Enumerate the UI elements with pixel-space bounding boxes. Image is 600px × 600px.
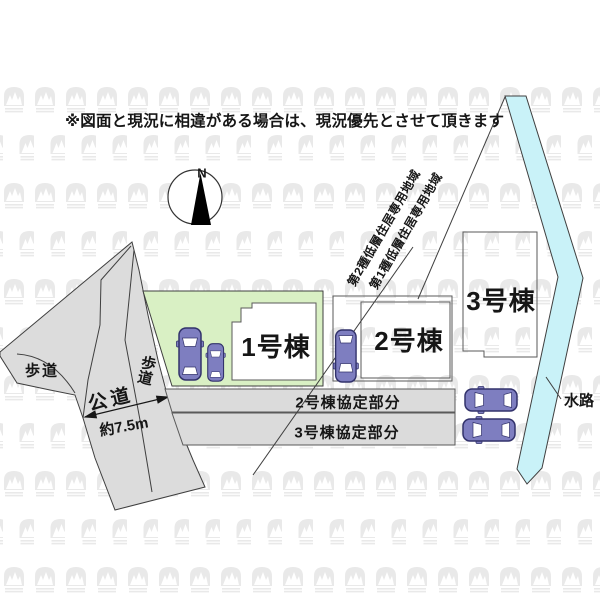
car-icon [465, 387, 517, 414]
compass-north-label: N [197, 167, 206, 180]
building-2-label: 2号棟 [374, 328, 443, 354]
agreement-band-2-label: 3号棟協定部分 [294, 426, 399, 441]
site-plan: ※図面と現況に相違がある場合は、現況優先とさせて頂きます N 第2種低層住居専用… [0, 0, 600, 600]
building-1-label: 1号棟 [241, 334, 310, 360]
car-icon [206, 344, 225, 381]
disclaimer-text: ※図面と現況に相違がある場合は、現況優先とさせて頂きます [65, 114, 504, 130]
sidewalk-left-label: 歩道 [25, 364, 59, 379]
agreement-band-1-label: 2号棟協定部分 [295, 396, 400, 411]
compass [168, 170, 222, 225]
car-icon [177, 328, 204, 380]
waterway-label: 水路 [564, 394, 594, 409]
car-icon [463, 417, 515, 444]
building-3-label: 3号棟 [466, 288, 535, 314]
car-icon [333, 330, 358, 382]
